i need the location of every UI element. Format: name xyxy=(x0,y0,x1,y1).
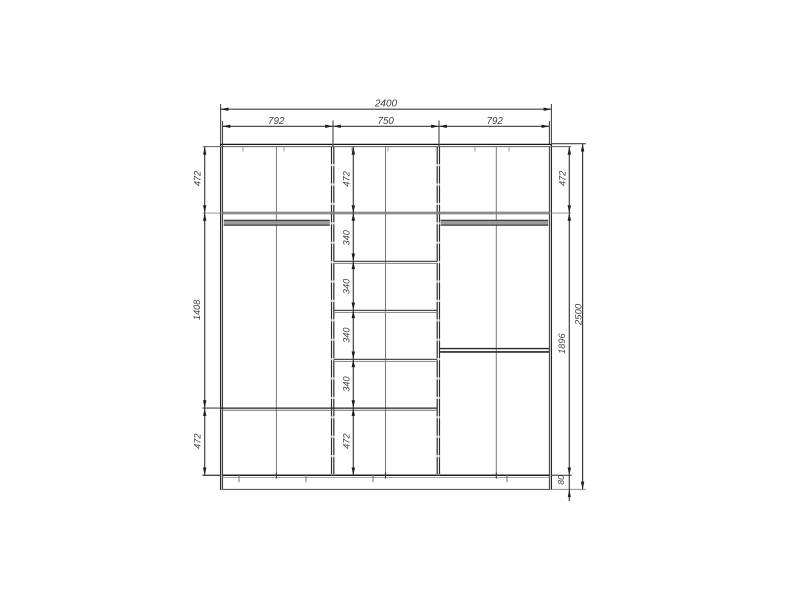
svg-text:472: 472 xyxy=(557,171,567,186)
svg-text:472: 472 xyxy=(193,171,203,186)
svg-text:2500: 2500 xyxy=(574,303,585,326)
svg-text:340: 340 xyxy=(342,229,352,245)
svg-text:80: 80 xyxy=(556,475,566,485)
svg-text:340: 340 xyxy=(342,327,352,343)
svg-text:2400: 2400 xyxy=(374,99,398,110)
svg-text:472: 472 xyxy=(193,434,203,449)
svg-text:1896: 1896 xyxy=(557,332,567,353)
svg-text:340: 340 xyxy=(342,376,352,392)
svg-text:792: 792 xyxy=(268,116,285,127)
svg-text:340: 340 xyxy=(342,278,352,294)
svg-text:750: 750 xyxy=(378,116,395,127)
svg-text:792: 792 xyxy=(487,116,504,127)
svg-text:472: 472 xyxy=(342,171,352,186)
svg-text:472: 472 xyxy=(342,434,352,449)
svg-text:1408: 1408 xyxy=(192,299,202,320)
